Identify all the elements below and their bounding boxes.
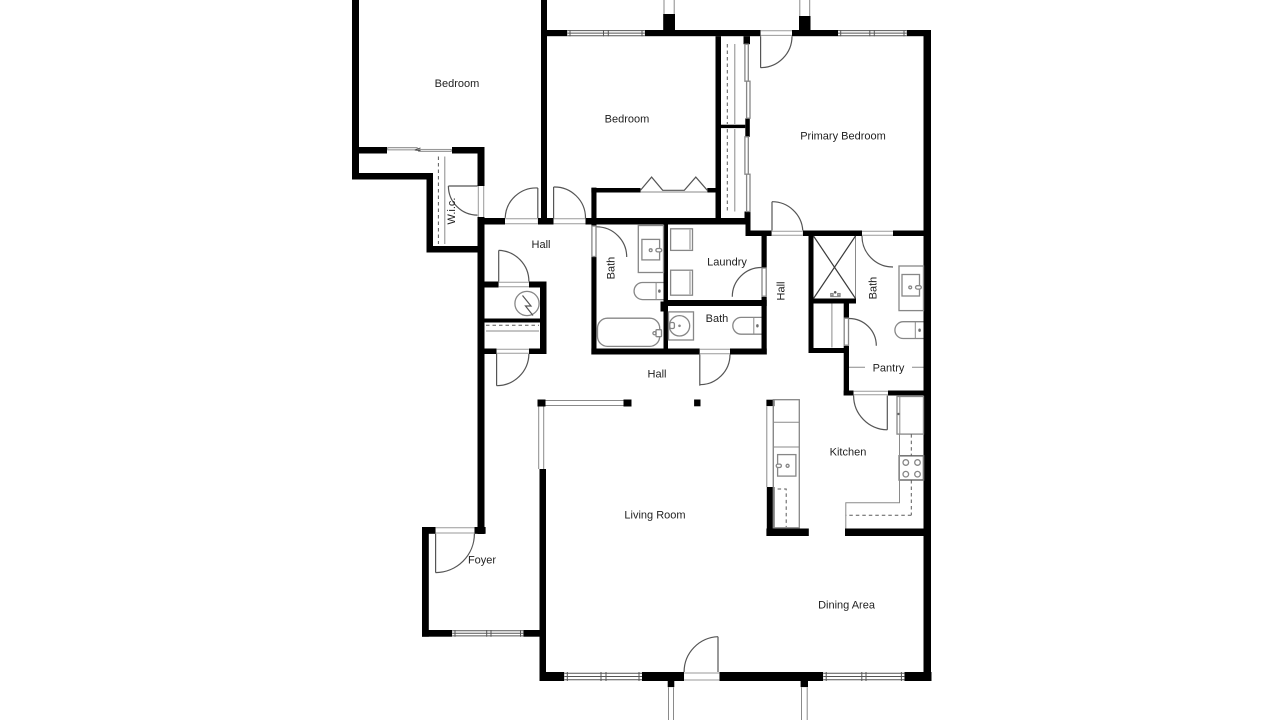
svg-text:Primary Bedroom: Primary Bedroom [800, 131, 886, 143]
svg-text:Hall: Hall [532, 239, 551, 251]
svg-text:Kitchen: Kitchen [830, 446, 867, 458]
svg-text:Foyer: Foyer [468, 554, 496, 566]
svg-text:Hall: Hall [776, 282, 788, 301]
svg-text:Bath: Bath [706, 313, 729, 325]
svg-text:Bedroom: Bedroom [605, 114, 650, 126]
svg-text:Living Room: Living Room [624, 509, 685, 521]
svg-text:Hall: Hall [648, 368, 667, 380]
svg-text:Dining Area: Dining Area [818, 599, 876, 611]
svg-text:W.i.c.: W.i.c. [446, 198, 458, 225]
svg-text:Laundry: Laundry [707, 257, 747, 269]
svg-text:Bath: Bath [868, 277, 880, 300]
svg-text:Bedroom: Bedroom [435, 78, 480, 90]
svg-text:Pantry: Pantry [873, 362, 905, 374]
svg-text:Bath: Bath [606, 257, 618, 280]
